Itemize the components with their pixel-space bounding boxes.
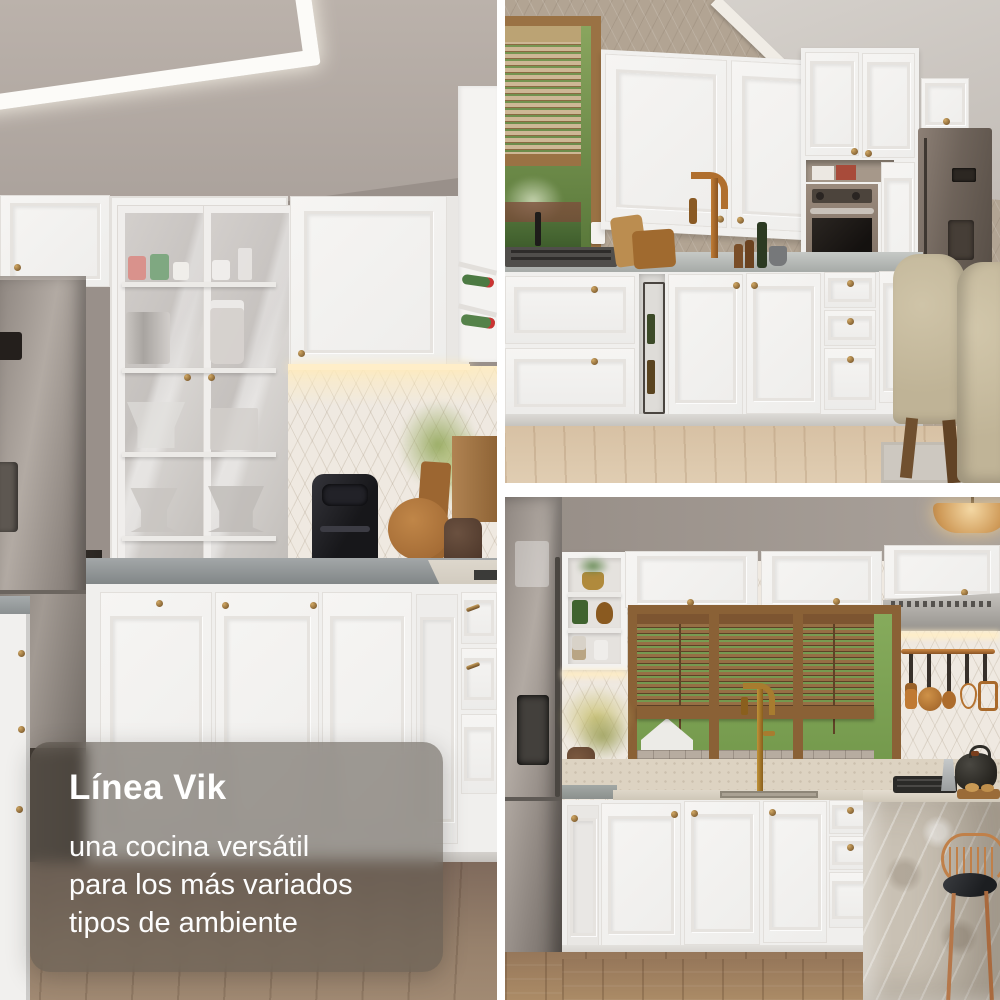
cabinet-knob (222, 602, 229, 609)
overlay-card: Línea Vik una cocina versátil para los m… (30, 742, 443, 972)
photo-kitchen-left: Línea Vik una cocina versátil para los m… (0, 0, 497, 1000)
upper-door (884, 545, 1000, 599)
utensil-handle (927, 654, 931, 688)
corner-drawer (461, 714, 497, 794)
sink-door (746, 273, 821, 414)
cabinet-knob (847, 280, 854, 287)
sink-door (668, 274, 743, 416)
utensil-handle (965, 654, 969, 684)
bottle (647, 360, 655, 394)
fridge-handle (555, 557, 560, 797)
cabinet-knob (184, 374, 191, 381)
spatula (905, 683, 917, 709)
corner-door (567, 805, 599, 949)
silver-cups (126, 312, 170, 364)
shelf (568, 592, 621, 597)
oven-handle (810, 208, 874, 214)
gas-cooktop (505, 247, 617, 267)
base-door (763, 801, 827, 943)
cabinet-knob (298, 350, 305, 357)
blinds-header (637, 614, 874, 624)
air-fryer-handle (320, 526, 370, 532)
utensil-handle (909, 654, 913, 684)
grate (511, 257, 611, 260)
cabinet-knob (751, 282, 758, 289)
photo-kitchen-top-right (505, 0, 1000, 483)
cabinet-shelf (122, 452, 276, 457)
wood-floor (562, 959, 882, 1000)
cabinet-knob (591, 286, 598, 293)
books (812, 166, 834, 180)
oven-knob (816, 192, 824, 200)
under-cabinet-glow (288, 366, 497, 406)
fridge-display (0, 332, 22, 360)
overlay-title: Línea Vik (69, 768, 227, 808)
kettle-lid (971, 751, 979, 756)
cabinet-knob (847, 318, 854, 325)
cabinet-shelf (122, 282, 276, 287)
overlay-subtitle: una cocina versátil para los más variado… (69, 828, 353, 942)
air-fryer (312, 474, 378, 566)
faucet-spout (741, 697, 748, 715)
cabinet-shelf (122, 368, 276, 373)
corner-sink (474, 570, 497, 580)
pepper-mill (745, 240, 754, 268)
cabinet-knob (571, 815, 578, 822)
hood-vents (891, 601, 995, 607)
red-mug (128, 256, 146, 280)
corner-drawer (461, 648, 497, 710)
cutting-board (632, 229, 677, 270)
under-shelf-glow (562, 670, 627, 678)
serving-board (957, 789, 1000, 799)
wire-rack (643, 282, 665, 414)
water-dispenser (948, 220, 974, 260)
overlay-line-1: una cocina versátil (69, 828, 353, 866)
glass-pitcher (210, 300, 244, 364)
upper-door (761, 551, 882, 608)
faucet-body (711, 178, 718, 258)
cabinet-knob (591, 358, 598, 365)
cabinet-knob (943, 118, 950, 125)
whisk (960, 683, 977, 709)
green-bottles (572, 600, 588, 624)
base-door (684, 801, 760, 945)
utensil-handle (947, 654, 951, 692)
cabinet-knob (14, 264, 21, 271)
bread (965, 783, 979, 792)
pullout-spice-rack (639, 274, 665, 418)
cabinet-knob (847, 356, 854, 363)
plant (576, 556, 610, 576)
fridge-display (952, 168, 976, 182)
wine-bottle (461, 274, 494, 288)
window (505, 16, 601, 282)
faucet-body (757, 689, 763, 791)
white-cup (173, 262, 189, 280)
pepper-mill (734, 244, 743, 268)
copper-pan (918, 687, 942, 711)
cabinet-knob (833, 598, 840, 605)
bottle (647, 314, 655, 344)
faucet-spray (689, 198, 697, 224)
mortar (769, 246, 787, 266)
cabinet-knob (18, 650, 25, 657)
shelf (458, 261, 497, 275)
grate (511, 250, 611, 253)
jar (594, 640, 608, 660)
cabinet-knob (737, 217, 744, 224)
base-drawer (505, 348, 635, 418)
upper-cabinet-right (290, 196, 447, 368)
water-dispenser (517, 695, 549, 765)
sink (720, 791, 818, 798)
island-counter (0, 596, 30, 614)
counter-gray (562, 785, 617, 799)
base-drawer (505, 276, 635, 344)
pendant-light (933, 503, 1000, 533)
fridge-seam (505, 797, 562, 801)
fridge-badge (515, 541, 549, 587)
utensil-handle (983, 654, 987, 682)
dining-chair (893, 254, 965, 424)
ladle (942, 691, 956, 709)
island-left (0, 596, 30, 1000)
jar (572, 636, 586, 660)
bread (981, 784, 994, 792)
cabinet-knob (851, 148, 858, 155)
upper-door (862, 53, 915, 158)
cabinet-knob (16, 806, 23, 813)
window-blinds (505, 26, 581, 158)
dining-chair (957, 262, 1000, 483)
cabinet-knob (847, 844, 854, 851)
white-cup (212, 260, 230, 280)
cabinet-knob (691, 810, 698, 817)
base-door (601, 803, 681, 947)
blinds-header (505, 26, 581, 42)
photo-kitchen-bottom-right (505, 497, 1000, 1000)
base-drawer (824, 310, 876, 346)
window-handle (535, 212, 541, 246)
window-rail (505, 154, 581, 166)
glass-display-cabinet (110, 196, 288, 566)
refrigerator (505, 497, 562, 1000)
air-fryer-panel (322, 484, 368, 506)
cabinet-knob (865, 150, 872, 157)
glass-tumblers (210, 408, 258, 450)
glass-tumbler (238, 248, 252, 280)
oven-knob (852, 192, 860, 200)
grater (978, 681, 998, 711)
cabinet-knob (717, 215, 724, 222)
corner-drawer (461, 592, 497, 644)
hood-light-glow (885, 631, 1000, 639)
cabinet-knob (769, 809, 776, 816)
shelf (568, 628, 621, 633)
wood-box (452, 436, 497, 522)
cabinet-shelf (122, 536, 276, 541)
led-strip (288, 364, 470, 370)
cabinet-knob (156, 600, 163, 607)
corner-wine-shelf (458, 86, 497, 362)
cabinet-knob (733, 282, 740, 289)
round-cutting-board (388, 498, 450, 560)
cabinet-knob (671, 811, 678, 818)
upper-door (805, 52, 859, 156)
oil-bottle (757, 222, 767, 268)
overlay-line-2: para los más variados (69, 866, 353, 904)
upper-cabinet-left (0, 195, 110, 287)
kitchen-collage: Línea Vik una cocina versátil para los m… (0, 0, 1000, 1000)
water-dispenser (0, 462, 18, 532)
green-mug (150, 254, 169, 280)
overlay-line-3: tipos de ambiente (69, 904, 353, 942)
red-book (836, 165, 856, 180)
amber-bottle (596, 602, 613, 624)
cabinet-knob (208, 374, 215, 381)
base-drawer (824, 272, 876, 308)
open-shelf-unit (562, 552, 627, 670)
cabinet-knob (847, 807, 854, 814)
faucet-handle (763, 731, 775, 736)
cabinet-knob (18, 726, 25, 733)
cabinet-knob (310, 602, 317, 609)
